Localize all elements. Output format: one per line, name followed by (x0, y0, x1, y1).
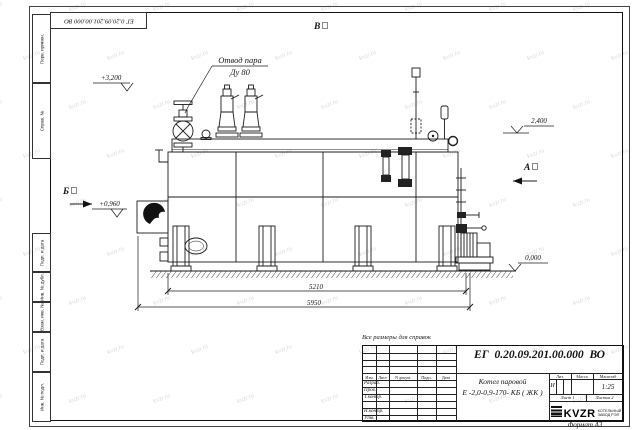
view-mark-icon (322, 22, 328, 29)
tb-row-razrab: Разраб. (364, 381, 389, 386)
view-label-v: В (314, 22, 328, 32)
tb-lit-value: И (549, 383, 556, 389)
view-mark-icon (71, 187, 77, 194)
support-legs (171, 226, 457, 271)
callout-steam-outlet: Отвод пара (210, 55, 270, 65)
burner (137, 201, 168, 233)
elevation-3200: +3,200 (93, 74, 129, 82)
kvzr-logo-text: KVZR (564, 408, 596, 420)
tb-scale-value: 1:25 (593, 383, 623, 391)
org-name: КОТЕЛЬНЫЙЗАВОД РЭП (598, 409, 622, 418)
tb-col-data: Дата (436, 375, 456, 380)
pipe-elbow (159, 150, 168, 162)
view-label-a: А (524, 163, 538, 173)
view-mark-icon (532, 163, 538, 170)
tb-col-izm: Изм. (363, 375, 376, 380)
tb-mass-header: Масса (571, 374, 593, 379)
tb-col-podp: Подп. (417, 375, 436, 380)
ground (150, 271, 516, 278)
tb-row-tkontr: Т.контр. (364, 395, 389, 400)
tb-name-line2: Е -2,0-0,9-170- КБ ( ЖК ) (456, 388, 549, 397)
elevation-2400: 2,400 (524, 117, 554, 125)
tb-row-nkontr: Н.контр. (364, 409, 389, 414)
drum-fitting (201, 130, 211, 140)
kvzr-logo-icon (551, 406, 562, 417)
tb-lit-header: Лит. (549, 374, 571, 379)
tb-row-prov: Пров. (364, 388, 389, 393)
format-label: Формат А3 (545, 421, 625, 429)
callout-dn: Ду 80 (210, 67, 270, 77)
dimension-5210: 5210 (296, 283, 336, 291)
tb-sheets: Листов 2 (586, 395, 623, 400)
tb-org-cell: KVZRКОТЕЛЬНЫЙЗАВОД РЭП (549, 404, 623, 422)
level-electrode (411, 68, 421, 139)
safety-valves (216, 85, 263, 137)
tb-sheet: Лист 1 (549, 395, 586, 400)
drawing-sheet: kvzr.rukvzr.rukvzr.rukvzr.rukvzr.rukvzr.… (0, 0, 644, 430)
tb-scale-header: Масштаб (593, 374, 623, 379)
side-fitting (160, 252, 168, 261)
view-label-b: Б (63, 187, 77, 197)
boiler-body (155, 139, 458, 262)
water-level-gauges (381, 147, 412, 187)
elevation-0000: 0,000 (518, 254, 548, 262)
elevation-0960: +0,960 (92, 200, 127, 208)
tb-col-list: Лист (376, 375, 389, 380)
tb-designation: ЕГ 0.20.09.201.00.000 ВО (456, 349, 623, 361)
tb-name-line1: Котел паровой (456, 377, 549, 386)
pressure-gauge (428, 131, 438, 141)
dimension-5950: 5950 (294, 299, 334, 307)
lifting-eye (449, 137, 458, 146)
tb-col-ndokum: N докум. (389, 375, 417, 380)
steam-outlet-valve (173, 101, 193, 152)
section-arrows (70, 178, 537, 208)
tb-row-utv: Утв. (364, 416, 389, 421)
gauge-column-ladder (456, 168, 486, 257)
thermometer (441, 106, 448, 139)
title-block: ЕГ 0.20.09.201.00.000 ВО Изм. Лист N док… (362, 345, 624, 422)
feed-pump (456, 233, 493, 270)
side-fitting (160, 238, 168, 246)
reference-note: Все размеры для справок (362, 334, 431, 341)
